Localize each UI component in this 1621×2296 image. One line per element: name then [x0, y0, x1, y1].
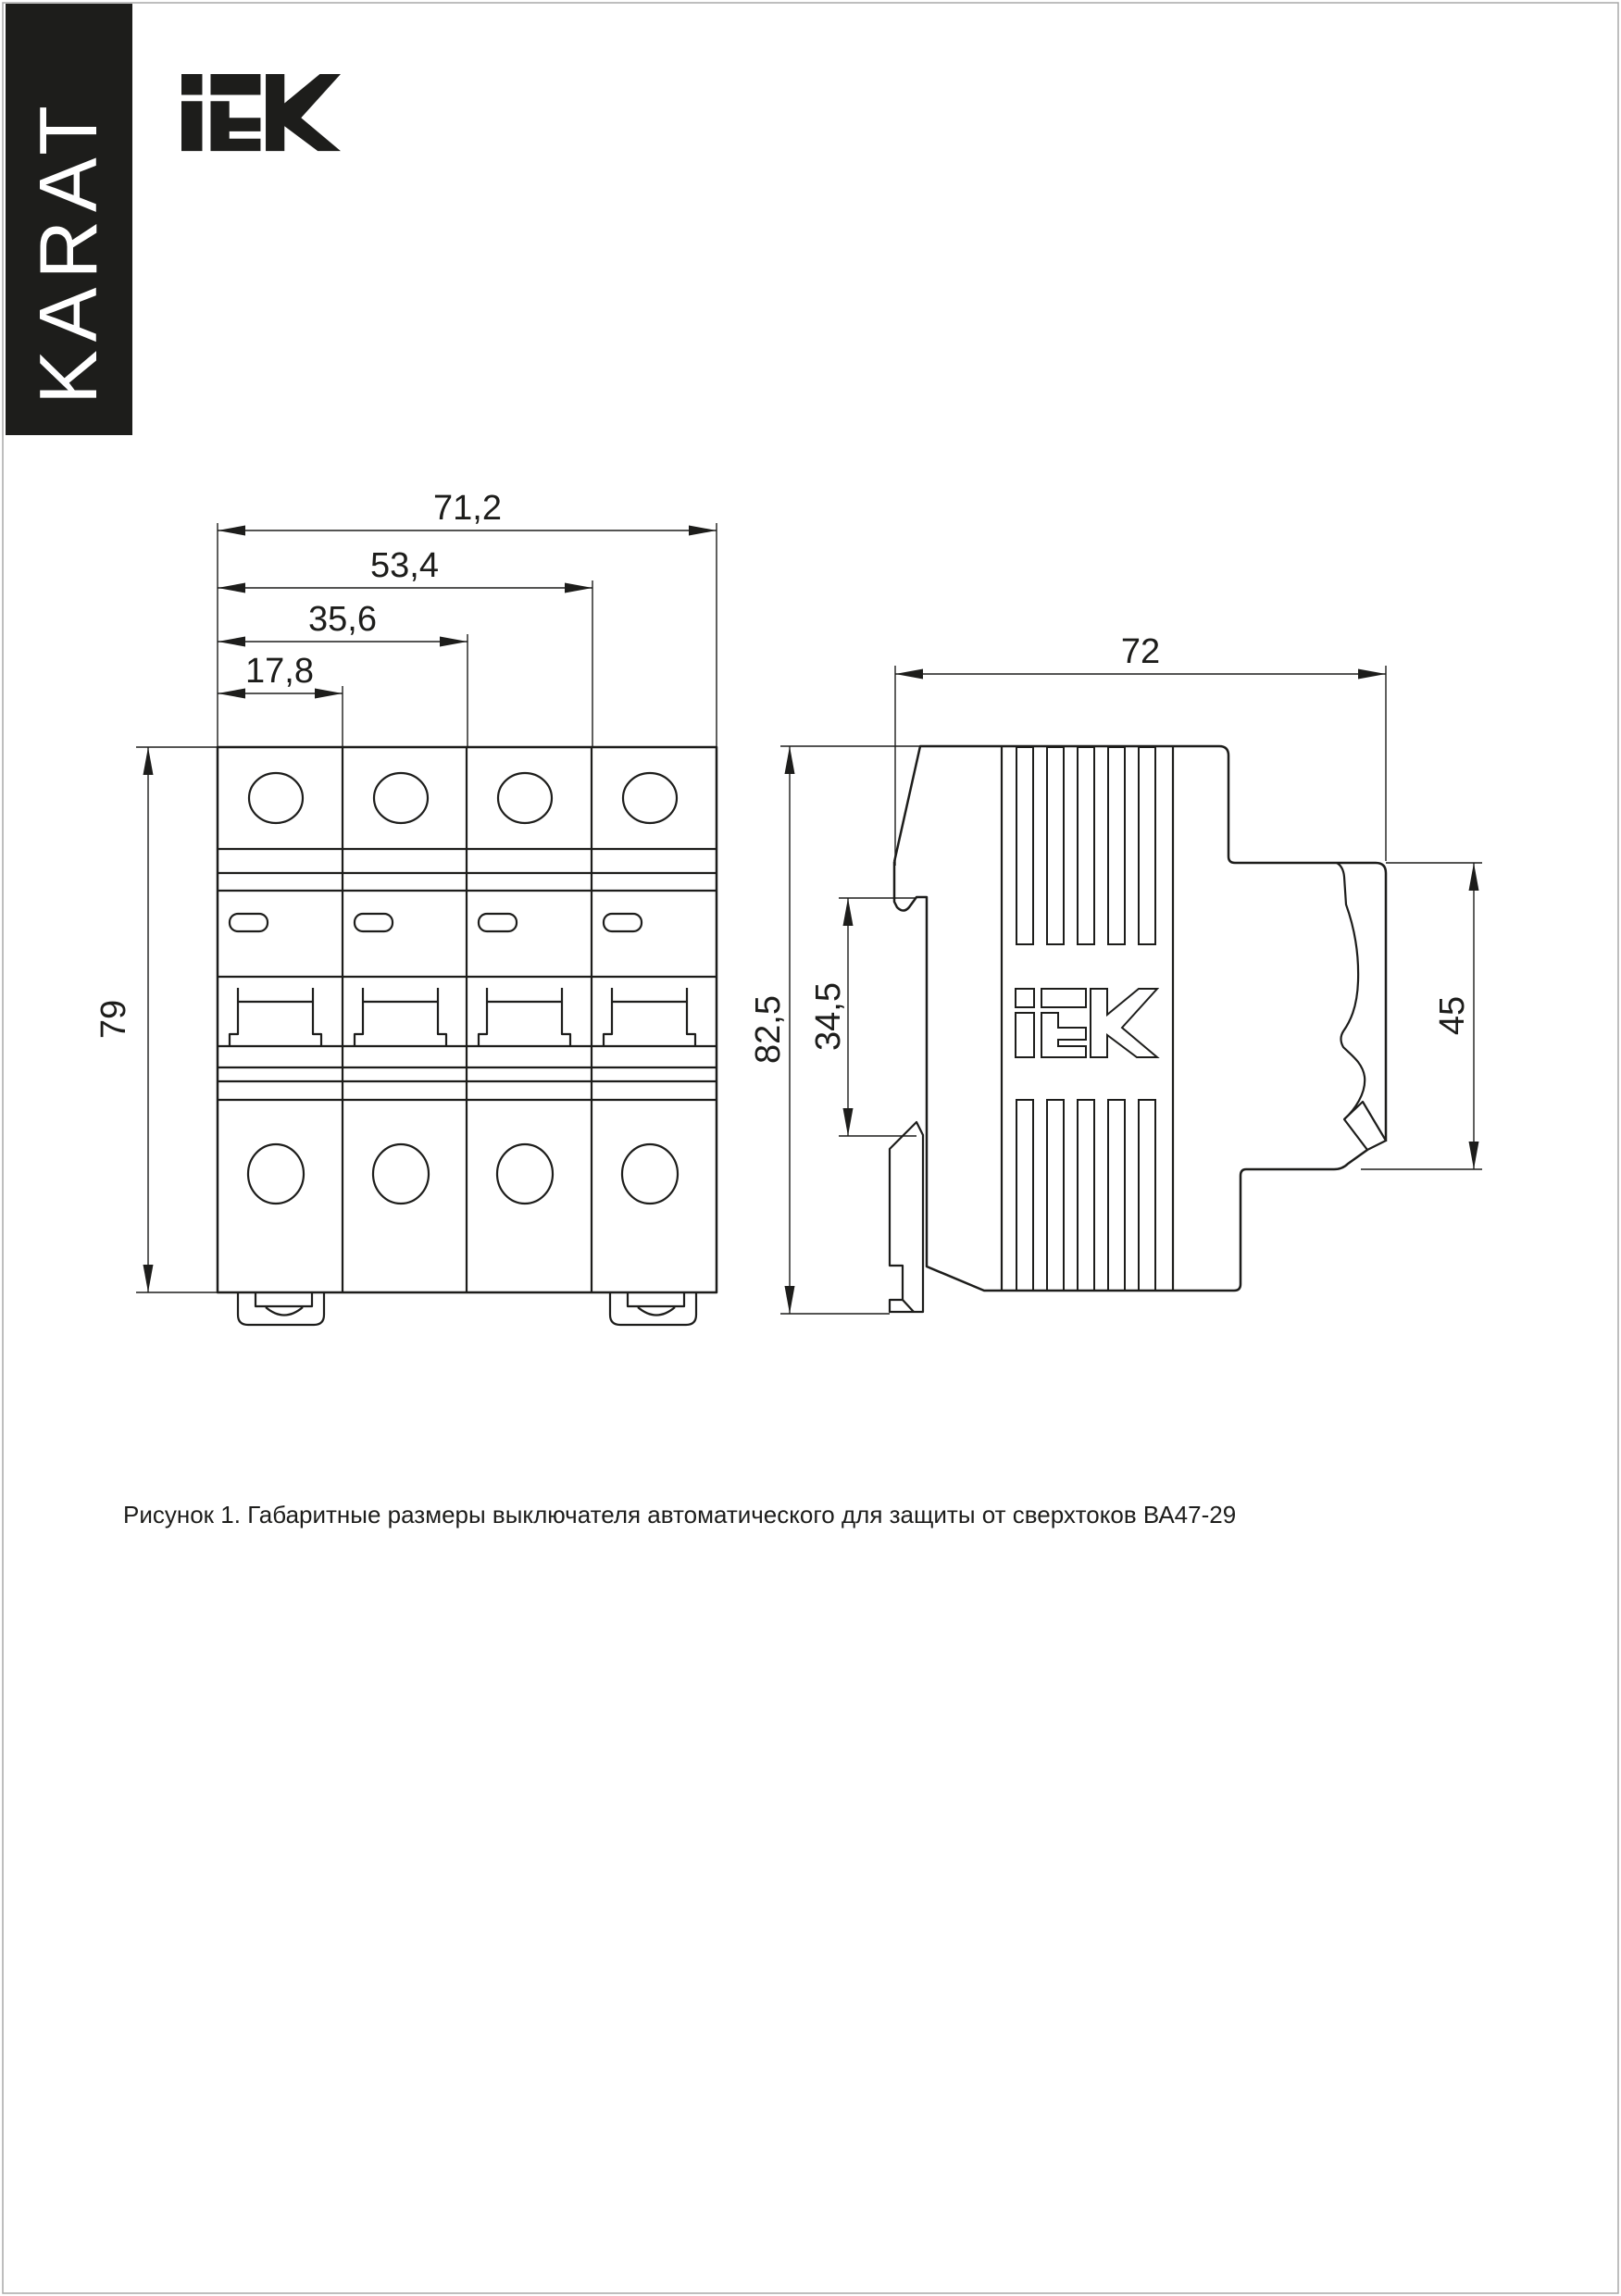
dim-depth-label: 72: [1121, 632, 1160, 671]
iek-logo: [181, 74, 341, 151]
dim-rail-recess-label: 34,5: [809, 982, 848, 1051]
dim-width-one-module-label: 17,8: [245, 652, 314, 691]
side-view: [890, 746, 1386, 1312]
front-top-screws: [249, 773, 677, 823]
dim-front-section-label: 45: [1433, 996, 1472, 1035]
dim-height-label: 79: [94, 1000, 133, 1039]
technical-drawing: KARAT: [0, 0, 1621, 2296]
front-label-slots: [230, 914, 642, 931]
figure-caption: Рисунок 1. Габаритные размеры выключател…: [123, 1501, 1236, 1529]
front-view: [218, 747, 717, 1325]
dim-width-total-label: 71,2: [433, 489, 502, 528]
dim-width-three-modules-label: 53,4: [370, 546, 439, 585]
dim-height-total-label: 82,5: [749, 995, 788, 1064]
datasheet-page: KARAT: [0, 0, 1621, 2296]
karat-banner: KARAT: [6, 4, 132, 435]
side-embossed-iek-logo: [1016, 989, 1157, 1057]
dim-width-two-modules-label: 35,6: [308, 600, 377, 639]
karat-label: KARAT: [22, 97, 114, 405]
side-ribs-bottom: [1016, 1100, 1155, 1291]
front-din-clips: [238, 1293, 696, 1325]
page-border: [3, 3, 1618, 2293]
front-bottom-screws: [248, 1144, 678, 1204]
side-view-dimensions: 72 82,5 34,5 45: [749, 632, 1482, 1314]
side-ribs-top: [1016, 747, 1155, 944]
front-toggle-handles: [230, 988, 695, 1046]
